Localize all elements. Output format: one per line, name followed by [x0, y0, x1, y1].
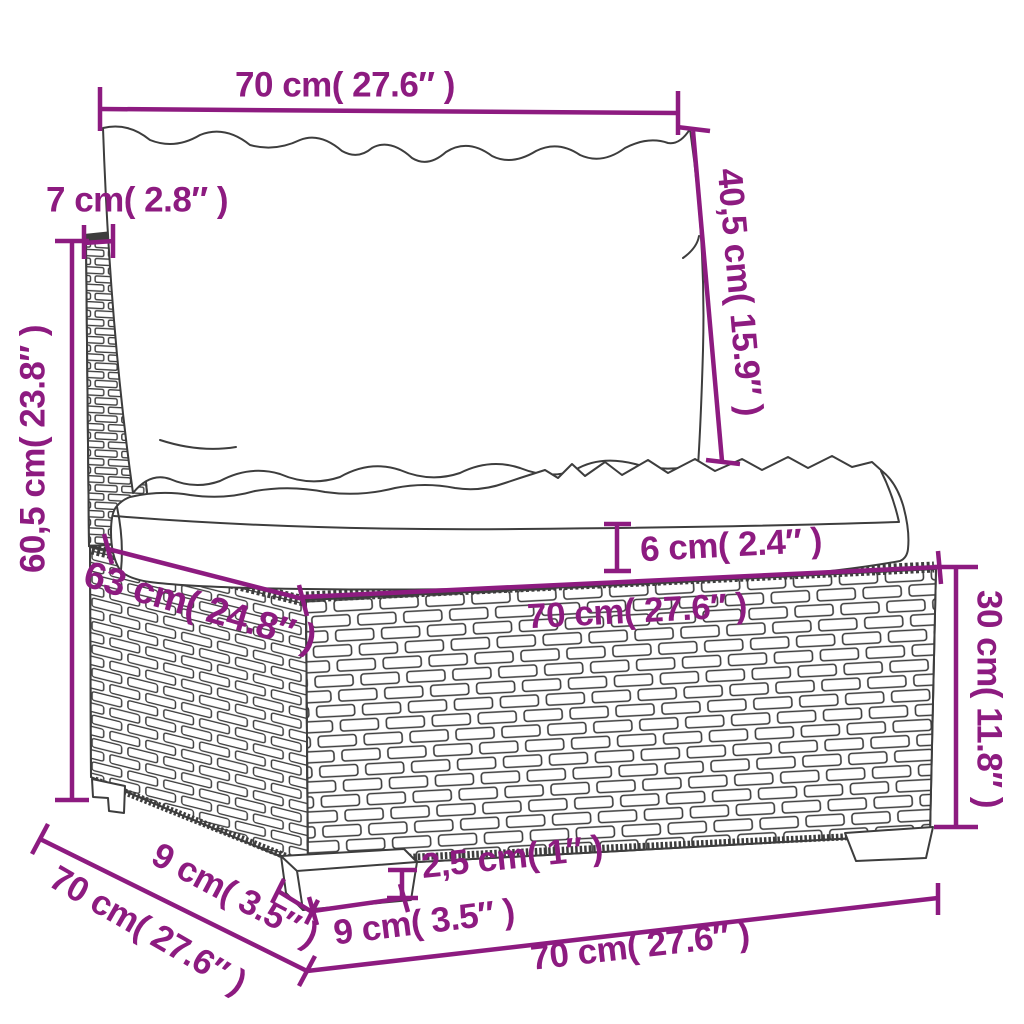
dim-base-height-label: 30 cm( 11.8″ ) [970, 590, 1009, 808]
dim-total-height-label: 60,5 cm( 23.8″ ) [14, 325, 53, 573]
dim-back-cushion-height-label: 40,5 cm( 15.9″ ) [710, 167, 770, 418]
foot-back-left [92, 779, 125, 813]
foot-front-right [845, 827, 933, 861]
dim-total-height: 60,5 cm( 23.8″ ) [14, 241, 90, 800]
sofa-dimension-diagram: 70 cm( 27.6″ ) 40,5 cm( 15.9″ ) 7 cm( 2.… [0, 0, 1024, 1024]
dimension-diagram-canvas: 70 cm( 27.6″ ) 40,5 cm( 15.9″ ) 7 cm( 2.… [0, 0, 1024, 1024]
dim-overall-width-label: 70 cm( 27.6″ ) [529, 914, 752, 978]
dim-top-width: 70 cm( 27.6″ ) [100, 66, 678, 136]
dim-top-width-label: 70 cm( 27.6″ ) [235, 66, 455, 105]
dim-back-thickness-label: 7 cm( 2.8″ ) [46, 181, 228, 220]
dim-base-height: 30 cm( 11.8″ ) [934, 567, 1009, 827]
